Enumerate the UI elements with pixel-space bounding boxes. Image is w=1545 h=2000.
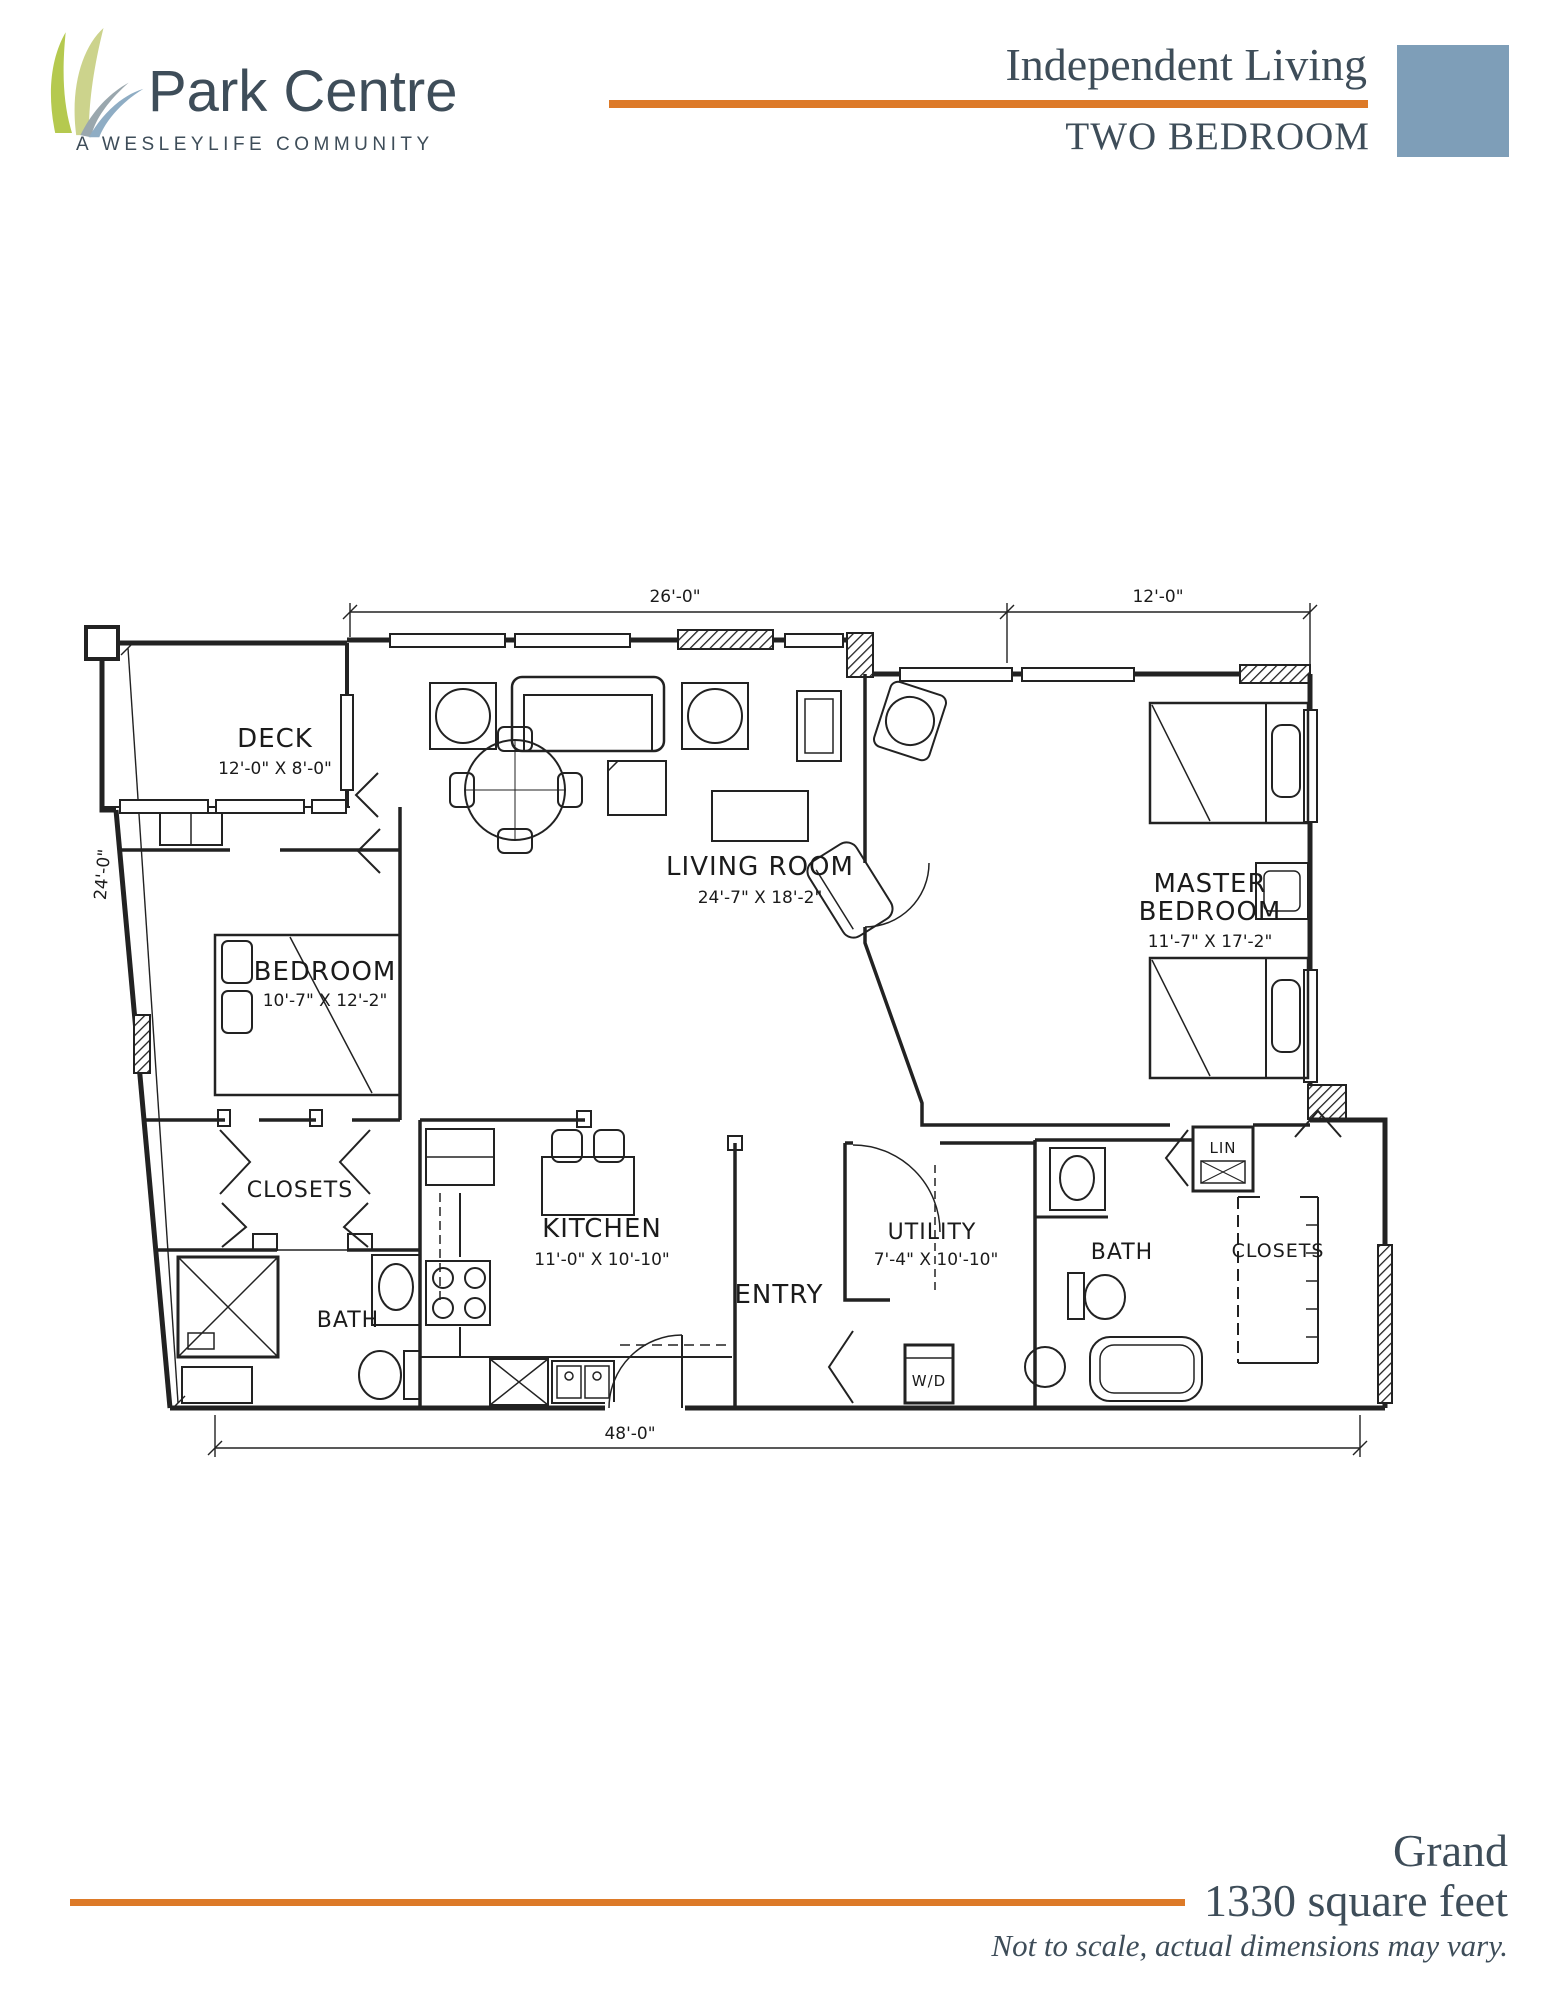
toilet — [404, 1351, 420, 1399]
brand-tagline: A WESLEYLIFE COMMUNITY — [76, 134, 434, 156]
floor-plan-page: Park Centre A WESLEYLIFE COMMUNITY Indep… — [0, 0, 1545, 2000]
armchair — [430, 683, 496, 749]
dim-label-top-left: 26'-0" — [649, 587, 700, 607]
decorative-blue-square — [1397, 45, 1509, 157]
program-title: Independent Living — [1005, 38, 1367, 91]
room-label-bath-left: BATH — [317, 1308, 379, 1333]
floor-plan-drawing: 26'-0" 12'-0" 48'-0" 24'-0" DECK 12' — [60, 545, 1520, 1485]
armchair — [682, 683, 748, 749]
living-room: LIVING ROOM 24'-7" X 18'-2" — [430, 677, 897, 942]
room-size-living: 24'-7" X 18'-2" — [698, 888, 823, 908]
room-size-utility: 7'-4" X 10'-10" — [874, 1250, 999, 1270]
room-size-kitchen: 11'-0" X 10'-10" — [534, 1250, 669, 1270]
room-label-living: LIVING ROOM — [666, 852, 854, 882]
room-size-bedroom: 10'-7" X 12'-2" — [263, 991, 388, 1011]
room-label-bath-right: BATH — [1091, 1240, 1153, 1265]
dimension-bottom: 48'-0" — [208, 1415, 1367, 1457]
pillow — [1272, 980, 1300, 1052]
master-bedroom: MASTER BEDROOM 11'-7" X 17'-2" — [797, 674, 1310, 1125]
room-label-linen: LIN — [1209, 1139, 1236, 1157]
bed — [1150, 958, 1308, 1078]
room-size-master: 11'-7" X 17'-2" — [1148, 932, 1273, 952]
entry: ENTRY — [605, 1136, 853, 1414]
plan-name: Grand — [1393, 1824, 1508, 1877]
room-label-closets-right: CLOSETS — [1232, 1240, 1325, 1262]
bed — [1150, 703, 1308, 823]
utility: UTILITY 7'-4" X 10'-10" W/D — [845, 1143, 1035, 1403]
door-swing-mark — [356, 773, 378, 817]
master-door-swing — [865, 863, 929, 927]
toilet — [1068, 1273, 1084, 1319]
logo-blade-green — [51, 32, 72, 133]
kitchen-table — [542, 1157, 634, 1215]
closet-door-mark — [222, 1203, 246, 1247]
kitchen: KITCHEN 11'-0" X 10'-10" — [420, 1111, 732, 1408]
wall-hatch — [678, 630, 773, 649]
room-label-utility: UTILITY — [888, 1220, 977, 1245]
footer-rule — [70, 1899, 1185, 1906]
utility-door-swing — [853, 1145, 940, 1232]
linen-closet: LIN — [1166, 1127, 1253, 1191]
room-size-deck: 12'-0" X 8'-0" — [218, 759, 332, 779]
pillow — [222, 941, 252, 983]
room-label-bedroom: BEDROOM — [254, 957, 397, 987]
room-label-master-line1: MASTER — [1153, 869, 1266, 899]
brand-name: Park Centre — [148, 58, 457, 125]
bath-right: BATH — [1025, 1140, 1202, 1408]
bedroom: BEDROOM 10'-7" X 12'-2" — [118, 773, 400, 1126]
pillow — [1272, 725, 1300, 797]
sofa — [512, 677, 664, 751]
deck: DECK 12'-0" X 8'-0" — [86, 627, 353, 813]
room-label-master-line2: BEDROOM — [1139, 897, 1282, 927]
disclaimer: Not to scale, actual dimensions may vary… — [991, 1928, 1508, 1964]
logo-blade-olive — [75, 28, 104, 135]
cabinet — [182, 1367, 252, 1403]
bath-left: BATH — [178, 1255, 420, 1403]
armchair — [872, 680, 948, 763]
room-label-entry: ENTRY — [734, 1280, 823, 1310]
room-label-kitchen: KITCHEN — [542, 1214, 662, 1244]
dim-label-bottom: 48'-0" — [604, 1424, 655, 1444]
side-table — [608, 761, 666, 815]
closet-door-mark — [220, 1130, 250, 1194]
room-label-closets-left: CLOSETS — [247, 1178, 353, 1203]
dimension-top: 26'-0" 12'-0" — [343, 587, 1317, 669]
closet-door-mark — [829, 1331, 853, 1403]
room-label-deck: DECK — [237, 724, 313, 754]
coffee-table — [712, 791, 808, 841]
dim-label-top-right: 12'-0" — [1132, 587, 1183, 607]
pillow — [222, 991, 252, 1033]
dim-label-left: 24'-0" — [91, 848, 115, 901]
kitchen-sink — [552, 1361, 614, 1403]
stool — [1025, 1347, 1065, 1387]
label-washer-dryer: W/D — [912, 1372, 946, 1390]
plan-area: 1330 square feet — [1204, 1874, 1508, 1927]
header-rule — [609, 100, 1368, 108]
tv-cabinet — [797, 691, 841, 761]
closets-left: CLOSETS — [156, 1130, 420, 1250]
unit-type-title: TWO BEDROOM — [1065, 114, 1370, 159]
